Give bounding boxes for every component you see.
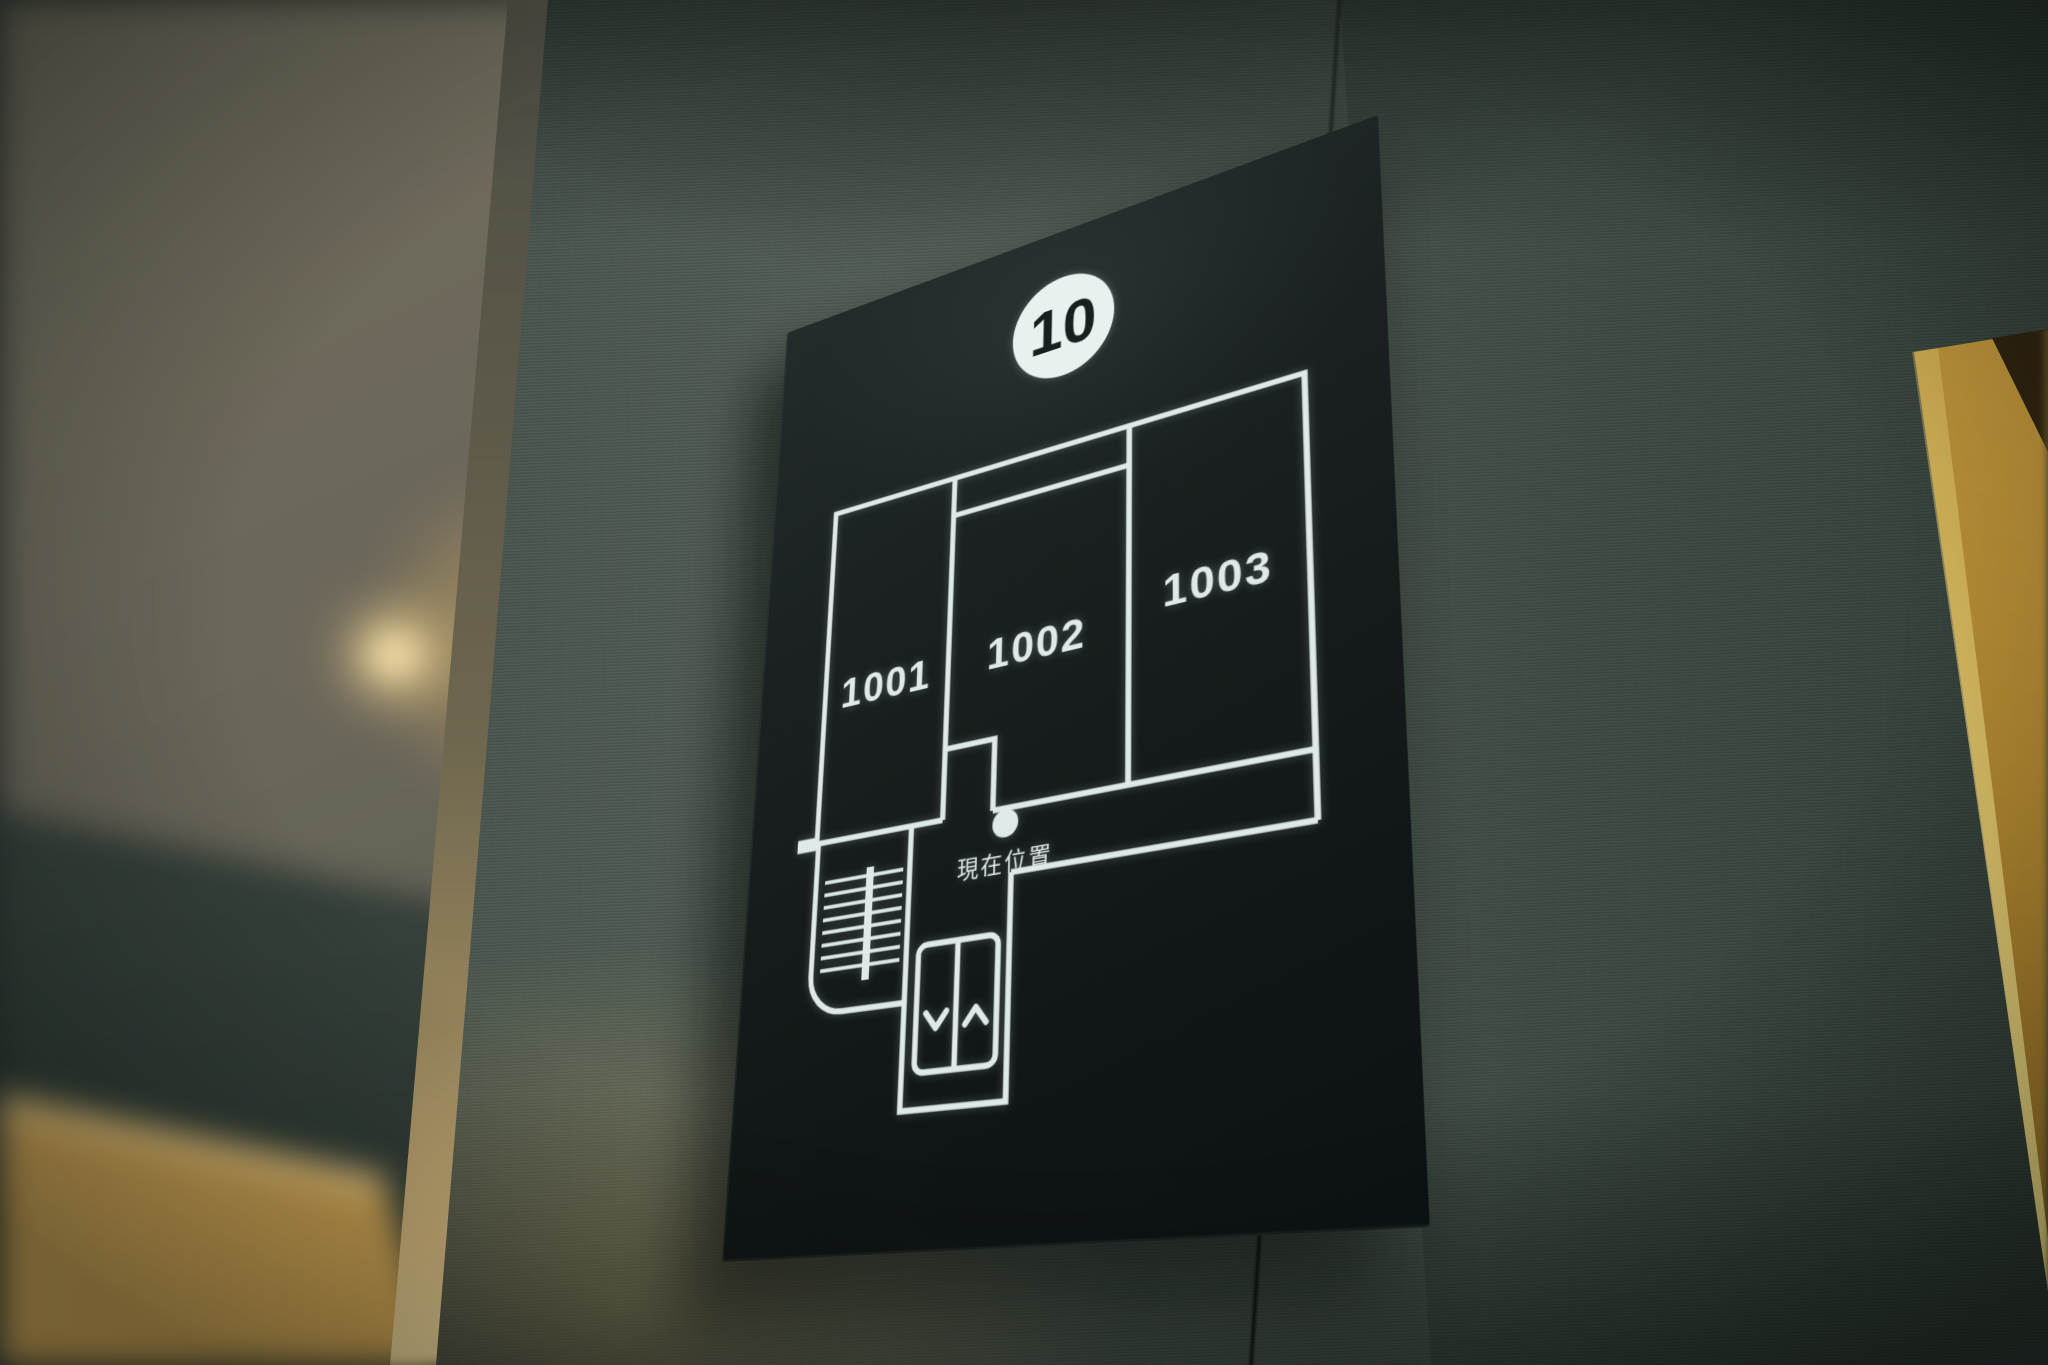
stair-treads xyxy=(820,869,903,971)
corridor-bottom xyxy=(1011,820,1318,872)
corridor-end-wall xyxy=(798,844,819,848)
corridor-top-west xyxy=(817,820,943,844)
elevator-icon xyxy=(914,934,999,1074)
floor-plan xyxy=(781,373,1326,1123)
room-divider-wall-1002-1003 xyxy=(1128,426,1129,785)
current-location-label: 現在位置 xyxy=(957,840,1054,885)
corridor-alcove xyxy=(943,739,995,820)
stairs-icon xyxy=(819,861,903,986)
room-divider-wall-1001-1002 xyxy=(943,478,955,820)
room-label-1003: 1003 xyxy=(1162,539,1273,617)
elevator-door-divider xyxy=(954,940,958,1069)
chevron-up-icon xyxy=(965,1006,987,1025)
chevron-down-icon xyxy=(925,1011,946,1029)
corridor-top-east xyxy=(993,749,1316,811)
room-label-1001: 1001 xyxy=(840,649,932,718)
plan-labels: 1001 1002 1003 現在位置 xyxy=(829,539,1279,906)
photo-scene: 10 xyxy=(0,0,2048,1365)
floor-number-badge: 10 xyxy=(1012,259,1115,392)
room-label-1002: 1002 xyxy=(986,607,1086,680)
ceiling-light xyxy=(368,632,420,678)
